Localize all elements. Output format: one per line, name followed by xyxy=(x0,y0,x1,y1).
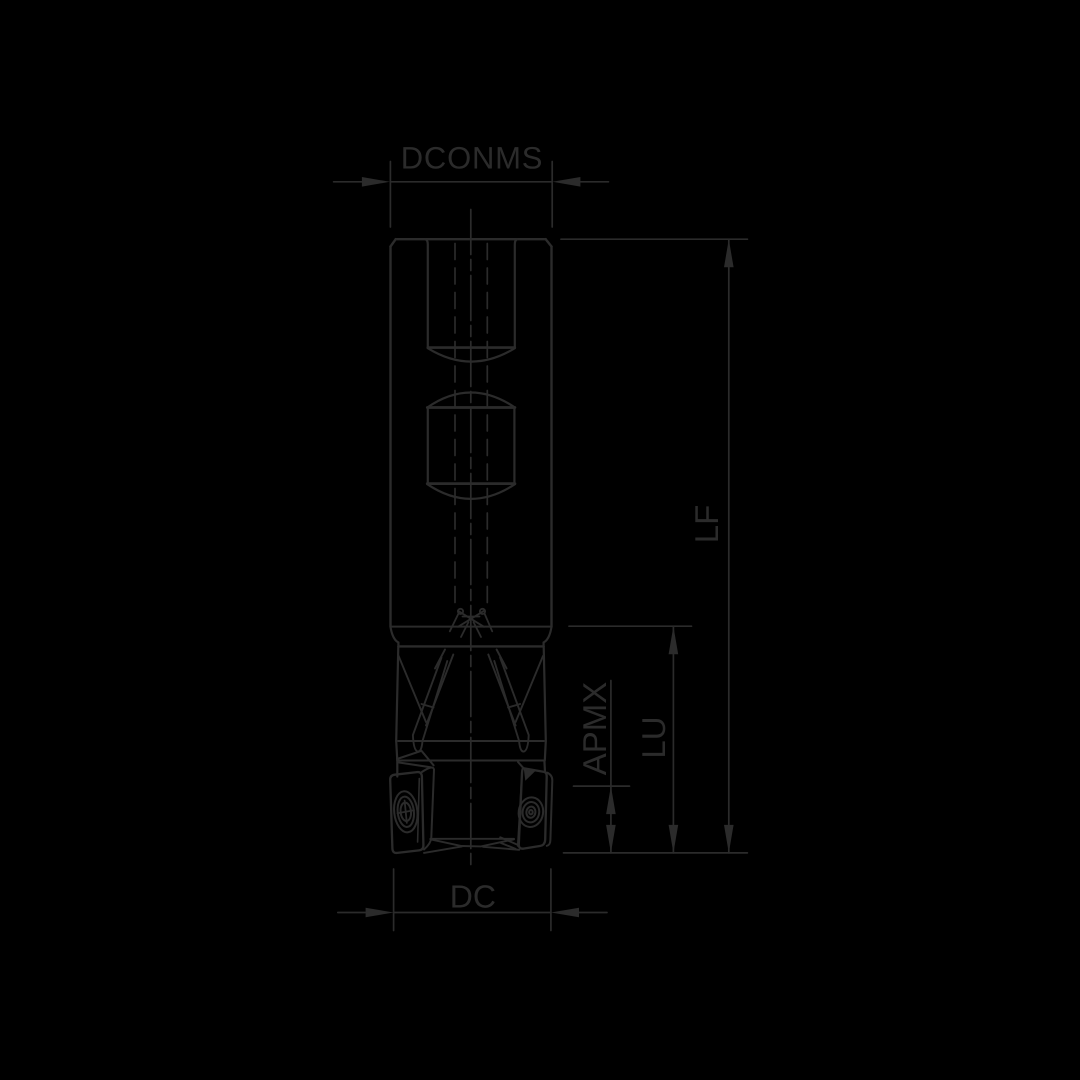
svg-text:DC: DC xyxy=(450,879,496,915)
svg-text:APMX: APMX xyxy=(576,682,613,776)
svg-text:LF: LF xyxy=(688,505,725,544)
svg-text:DCONMS: DCONMS xyxy=(401,140,544,175)
svg-text:LU: LU xyxy=(635,716,672,758)
